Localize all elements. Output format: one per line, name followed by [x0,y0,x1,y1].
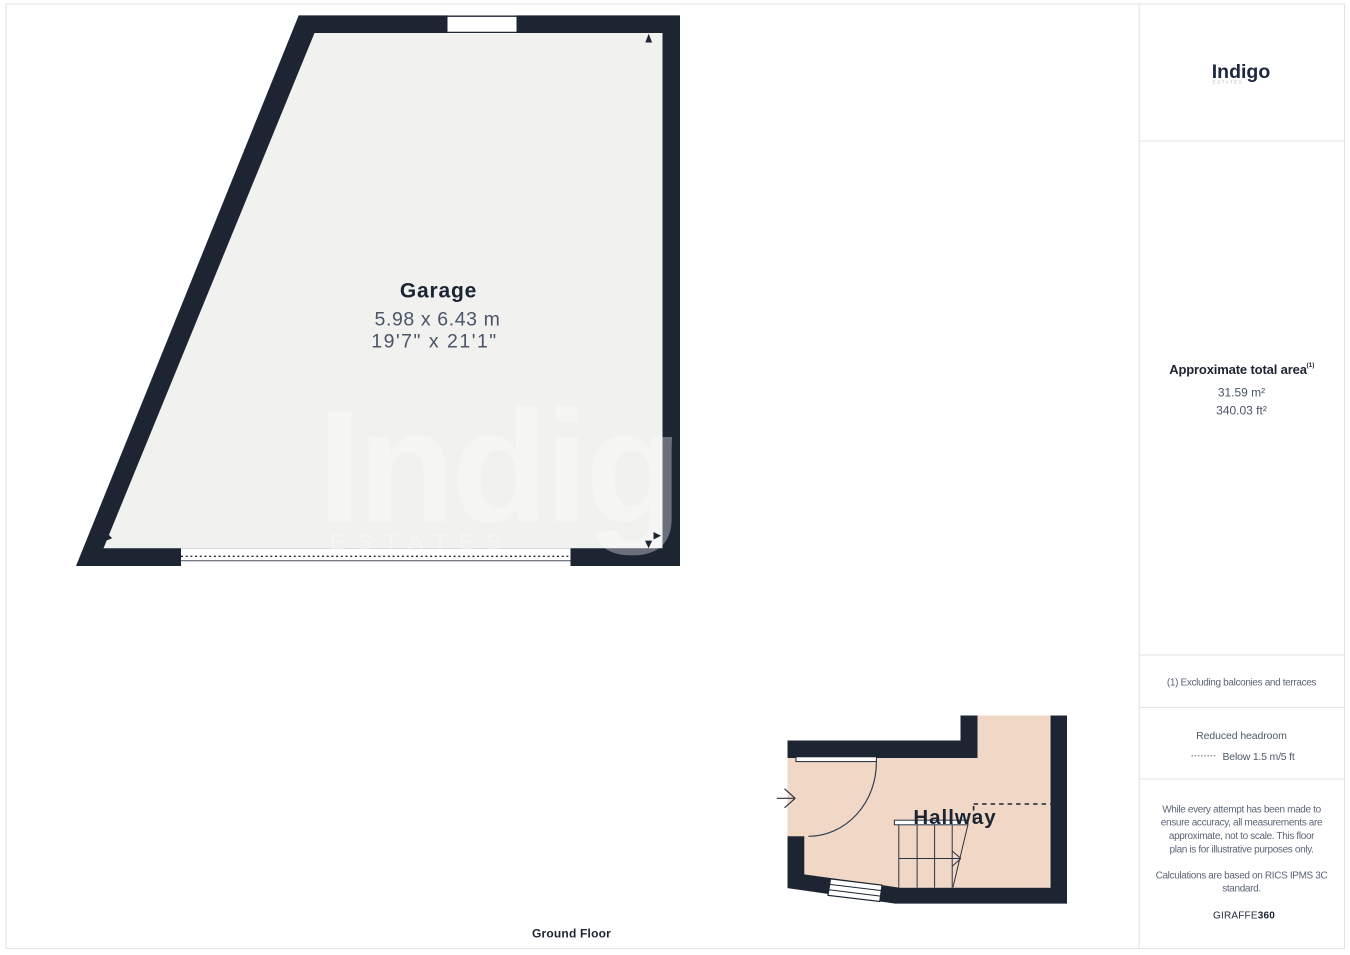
svg-text:Calculations are based on RICS: Calculations are based on RICS IPMS 3C [1156,871,1328,882]
svg-text:(1): (1) [1307,362,1315,369]
svg-text:31.59 m²: 31.59 m² [1218,385,1265,399]
svg-text:ESTATES: ESTATES [330,530,513,555]
svg-text:ensure accuracy, all measureme: ensure accuracy, all measurements are [1161,817,1323,828]
svg-text:340.03 ft²: 340.03 ft² [1216,403,1267,417]
svg-text:Below 1.5 m/5 ft: Below 1.5 m/5 ft [1223,751,1295,763]
svg-text:Ground Floor: Ground Floor [532,927,611,941]
svg-text:standard.: standard. [1222,884,1261,895]
svg-text:Hallway: Hallway [913,806,996,829]
svg-text:approximate, not to scale. Thi: approximate, not to scale. This floor [1169,831,1315,842]
svg-text:ESTATES: ESTATES [1213,79,1244,84]
svg-text:5.98 x 6.43 m: 5.98 x 6.43 m [375,309,501,331]
svg-text:Approximate total area: Approximate total area [1169,362,1307,377]
svg-text:Reduced headroom: Reduced headroom [1196,730,1287,742]
svg-text:Garage: Garage [400,280,477,303]
svg-text:(1) Excluding balconies and te: (1) Excluding balconies and terraces [1167,677,1317,688]
svg-text:While every attempt has been m: While every attempt has been made to [1162,804,1321,815]
svg-text:plan is for illustrative purpo: plan is for illustrative purposes only. [1169,844,1313,855]
svg-text:19'7" x 21'1": 19'7" x 21'1" [371,331,497,353]
svg-text:GIRAFFE360: GIRAFFE360 [1213,911,1275,922]
